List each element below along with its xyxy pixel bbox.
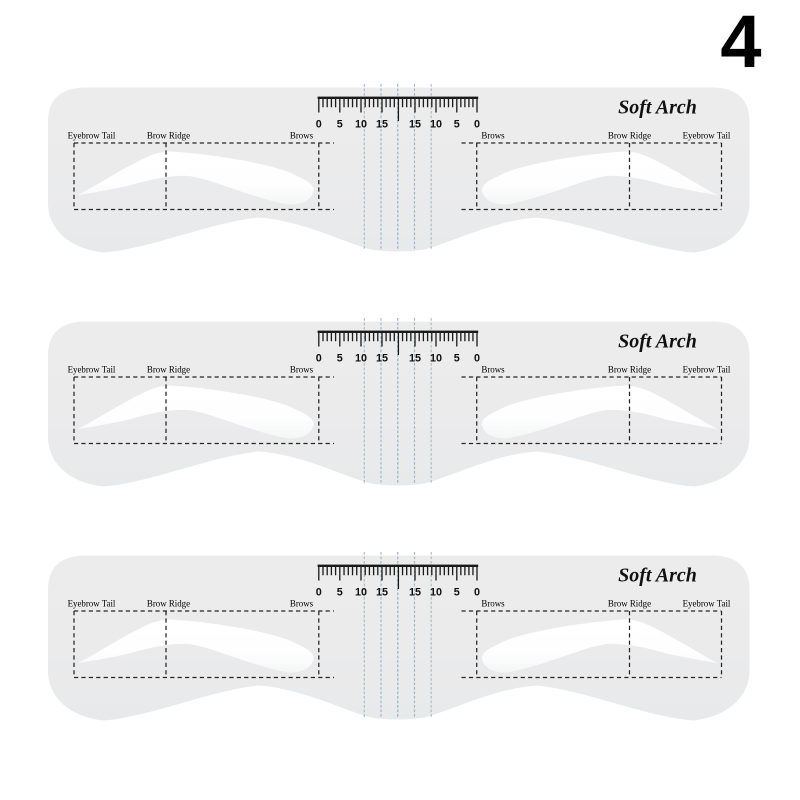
svg-text:Brow Ridge: Brow Ridge (147, 364, 190, 374)
svg-text:Soft Arch: Soft Arch (618, 565, 697, 587)
svg-text:Eyebrow Tail: Eyebrow Tail (683, 130, 731, 140)
svg-text:5: 5 (337, 353, 343, 365)
svg-text:0: 0 (474, 353, 480, 365)
svg-text:Eyebrow Tail: Eyebrow Tail (68, 598, 116, 608)
svg-text:0: 0 (474, 119, 480, 131)
svg-text:Brows: Brows (290, 130, 314, 140)
svg-text:5: 5 (454, 119, 460, 131)
svg-text:Brows: Brows (290, 598, 314, 608)
svg-text:Brows: Brows (290, 364, 314, 374)
svg-text:Brows: Brows (481, 364, 505, 374)
svg-text:10: 10 (355, 587, 367, 599)
svg-text:Brow Ridge: Brow Ridge (608, 130, 651, 140)
svg-text:5: 5 (337, 119, 343, 131)
svg-text:Brow Ridge: Brow Ridge (608, 598, 651, 608)
svg-text:Brow Ridge: Brow Ridge (147, 130, 190, 140)
svg-text:5: 5 (454, 353, 460, 365)
svg-text:0: 0 (316, 119, 322, 131)
svg-text:5: 5 (337, 587, 343, 599)
svg-text:15: 15 (376, 587, 388, 599)
svg-text:0: 0 (316, 587, 322, 599)
svg-text:10: 10 (430, 119, 442, 131)
svg-text:10: 10 (430, 587, 442, 599)
svg-text:Eyebrow Tail: Eyebrow Tail (683, 364, 731, 374)
svg-text:0: 0 (316, 353, 322, 365)
svg-text:Eyebrow Tail: Eyebrow Tail (68, 130, 116, 140)
svg-text:Brows: Brows (481, 598, 505, 608)
svg-text:15: 15 (409, 119, 421, 131)
svg-text:Soft Arch: Soft Arch (618, 331, 697, 353)
svg-text:Brow Ridge: Brow Ridge (147, 598, 190, 608)
svg-text:Eyebrow Tail: Eyebrow Tail (68, 364, 116, 374)
svg-text:4: 4 (720, 0, 761, 83)
svg-text:15: 15 (376, 353, 388, 365)
svg-text:Soft Arch: Soft Arch (618, 97, 697, 119)
svg-text:10: 10 (355, 353, 367, 365)
svg-text:Eyebrow Tail: Eyebrow Tail (683, 598, 731, 608)
svg-text:10: 10 (355, 119, 367, 131)
svg-text:5: 5 (454, 587, 460, 599)
svg-text:15: 15 (409, 353, 421, 365)
svg-text:Brow Ridge: Brow Ridge (608, 364, 651, 374)
svg-text:Brows: Brows (481, 130, 505, 140)
svg-text:15: 15 (409, 587, 421, 599)
svg-text:15: 15 (376, 119, 388, 131)
svg-text:0: 0 (474, 587, 480, 599)
svg-text:10: 10 (430, 353, 442, 365)
